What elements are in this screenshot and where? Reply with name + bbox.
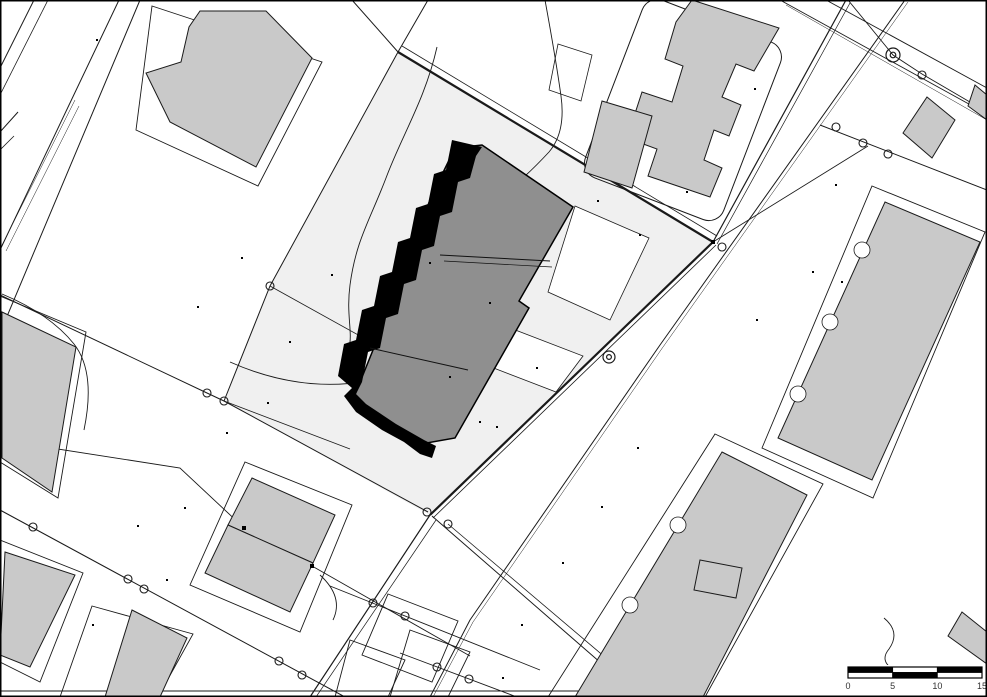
point-dot bbox=[96, 39, 98, 41]
point-dot bbox=[184, 507, 186, 509]
point-dot bbox=[637, 447, 639, 449]
scale-bar-label: 10 bbox=[932, 681, 942, 691]
scale-bar-segment bbox=[893, 673, 938, 679]
point-dot bbox=[536, 367, 538, 369]
point-dot bbox=[92, 624, 94, 626]
point-dot bbox=[521, 624, 523, 626]
facade-notch bbox=[622, 597, 638, 613]
point-dot bbox=[241, 257, 243, 259]
point-dot bbox=[489, 302, 491, 304]
point-dot bbox=[226, 432, 228, 434]
facade-notch bbox=[790, 386, 806, 402]
facade-notch bbox=[854, 242, 870, 258]
scale-bar-label: 15 bbox=[977, 681, 987, 691]
scale-bar-segment bbox=[893, 667, 938, 673]
scale-bar-segment bbox=[848, 673, 893, 679]
point-dot bbox=[496, 426, 498, 428]
point-dot bbox=[841, 281, 843, 283]
point-dot bbox=[812, 271, 814, 273]
point-dot bbox=[502, 677, 504, 679]
scale-bar-segment bbox=[848, 667, 893, 673]
scale-bar-segment bbox=[937, 667, 982, 673]
point-dot bbox=[197, 306, 199, 308]
point-dot bbox=[601, 506, 603, 508]
scale-bar-label: 0 bbox=[845, 681, 850, 691]
site-plan-map: 051015 bbox=[0, 0, 987, 697]
facade-notch bbox=[670, 517, 686, 533]
point-dot bbox=[756, 319, 758, 321]
scale-bar-segment bbox=[937, 673, 982, 679]
point-dot bbox=[267, 402, 269, 404]
point-dot bbox=[754, 88, 756, 90]
site-plan-stage: 051015 bbox=[0, 0, 987, 697]
point-dot bbox=[597, 200, 599, 202]
point-dot bbox=[686, 191, 688, 193]
point-dot bbox=[479, 421, 481, 423]
facade-notch bbox=[822, 314, 838, 330]
marker-square bbox=[242, 526, 246, 530]
point-dot bbox=[562, 562, 564, 564]
point-dot bbox=[289, 341, 291, 343]
marker-square bbox=[711, 240, 715, 244]
point-dot bbox=[835, 184, 837, 186]
point-dot bbox=[137, 525, 139, 527]
scale-bar-label: 5 bbox=[890, 681, 895, 691]
point-dot bbox=[449, 376, 451, 378]
point-dot bbox=[429, 262, 431, 264]
point-dot bbox=[331, 274, 333, 276]
marker-square bbox=[310, 564, 314, 568]
point-dot bbox=[639, 234, 641, 236]
point-dot bbox=[166, 579, 168, 581]
